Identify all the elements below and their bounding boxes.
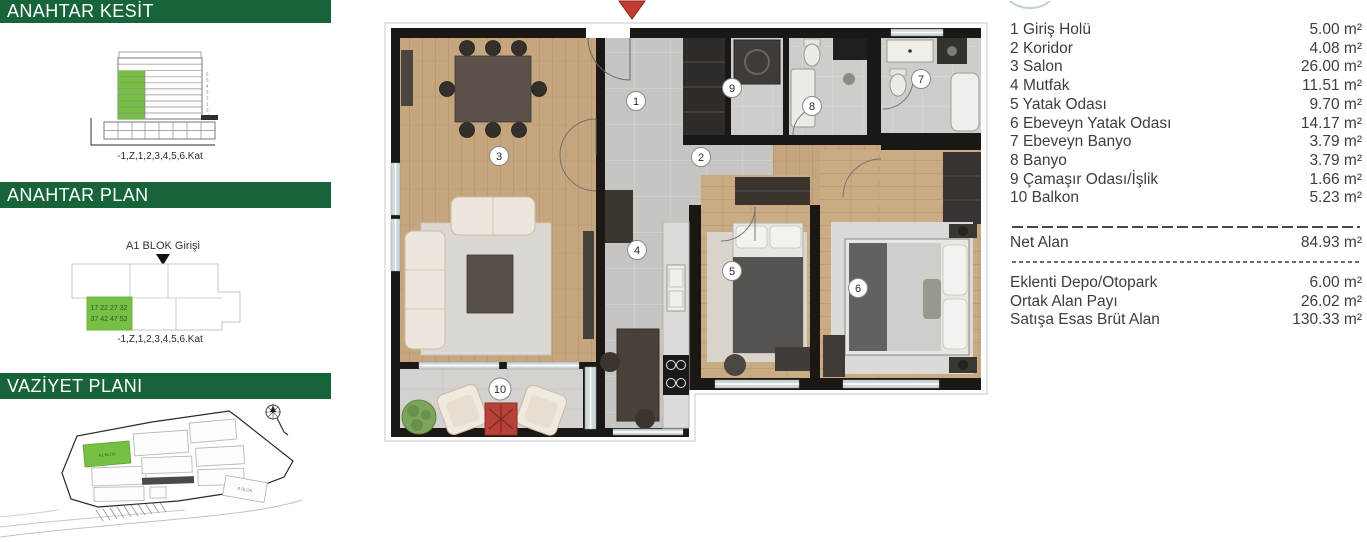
room-name: Koridor xyxy=(1023,40,1073,57)
pillow xyxy=(770,226,801,248)
site-plan-diagram: B BLOK A1 BLOK xyxy=(0,399,331,542)
room-area: 4.08 m² xyxy=(1309,40,1362,59)
room-label: 3 Salon xyxy=(1010,58,1063,77)
kitchen-chair xyxy=(635,409,655,429)
room-list-row: 1 Giriş Holü5.00 m² xyxy=(1010,21,1362,40)
washing-machine xyxy=(734,40,780,84)
building-outline xyxy=(94,487,144,502)
section-header-vaziyet-plani: VAZİYET PLANI xyxy=(0,373,331,399)
floor-labels: 6 5 4 3 2 1 Z -1 xyxy=(206,71,210,118)
sofa xyxy=(405,231,445,349)
highlighted-unit xyxy=(87,297,132,330)
room-name: Ebeveyn Yatak Odası xyxy=(1023,115,1172,132)
unit-numbers-row2: 37 42 47 52 xyxy=(91,316,128,323)
kitchen-counter xyxy=(663,222,689,428)
svg-text:2: 2 xyxy=(698,152,704,164)
room-list: 1 Giriş Holü5.00 m² 2 Koridor4.08 m² 3 S… xyxy=(1010,0,1362,542)
extra-value: 26.02 m² xyxy=(1301,293,1362,312)
section-title-plan: ANAHTAR PLAN xyxy=(7,185,149,206)
room-name: Banyo xyxy=(1023,152,1067,169)
shower-head-icon xyxy=(947,46,957,56)
building-outline xyxy=(142,456,193,474)
svg-text:3: 3 xyxy=(496,151,502,163)
section-title-vaziyet: VAZİYET PLANI xyxy=(7,376,143,397)
floor-plan: 1 2 3 4 5 6 7 8 9 10 xyxy=(383,17,993,447)
room-area: 3.79 m² xyxy=(1309,152,1362,171)
room-name: Ebeveyn Banyo xyxy=(1023,133,1132,150)
net-area-label: Net Alan xyxy=(1010,234,1069,253)
dresser xyxy=(775,347,810,371)
room-badge-2: 2 xyxy=(692,148,711,167)
room-label: 8 Banyo xyxy=(1010,152,1067,171)
room-list-row: 9 Çamaşır Odası/İşlik1.66 m² xyxy=(1010,171,1362,190)
room-list-items: 1 Giriş Holü5.00 m² 2 Koridor4.08 m² 3 S… xyxy=(1010,21,1362,208)
red-side-table xyxy=(485,403,517,435)
floor-label: Z xyxy=(206,108,209,113)
floor-label: 4 xyxy=(206,83,209,88)
floor-label: 2 xyxy=(206,96,209,101)
room-label: 6 Ebeveyn Yatak Odası xyxy=(1010,115,1171,134)
room-label: 2 Koridor xyxy=(1010,40,1073,59)
kitchen-sink xyxy=(667,265,685,311)
building-outline xyxy=(92,466,147,486)
svg-text:4: 4 xyxy=(634,245,640,257)
room-badge-1: 1 xyxy=(627,92,646,111)
room-label: 7 Ebeveyn Banyo xyxy=(1010,133,1132,152)
coffee-table xyxy=(467,255,513,313)
duvet xyxy=(733,257,803,353)
room-badge-5: 5 xyxy=(723,262,742,281)
room-no: 4 xyxy=(1010,77,1019,94)
room-no: 2 xyxy=(1010,40,1019,57)
extra-label: Eklenti Depo/Otopark xyxy=(1010,274,1157,293)
room-no: 7 xyxy=(1010,133,1019,150)
room-name: Yatak Odası xyxy=(1023,96,1107,113)
extra-row: Satışa Esas Brüt Alan 130.33 m² xyxy=(1010,311,1362,330)
shower-head-icon xyxy=(843,73,855,85)
room-list-row: 3 Salon26.00 m² xyxy=(1010,58,1362,77)
room-no: 9 xyxy=(1010,171,1019,188)
media-console xyxy=(583,231,594,339)
room-name: Balkon xyxy=(1032,189,1079,206)
room-badge-4: 4 xyxy=(628,241,647,260)
room-badge-7: 7 xyxy=(912,70,931,89)
room-badge-6: 6 xyxy=(849,279,868,298)
room-area: 9.70 m² xyxy=(1309,96,1362,115)
room-list-row: 4 Mutfak11.51 m² xyxy=(1010,77,1362,96)
section-roof xyxy=(119,52,201,58)
separator-line-dashed xyxy=(1012,261,1360,263)
entrance-gap xyxy=(586,28,630,38)
room-name: Salon xyxy=(1023,58,1063,75)
kitchen-chair xyxy=(600,352,620,372)
sidebar: ANAHTAR KESİT 6 5 4 3 2 1 Z -1 xyxy=(0,0,331,542)
section-header-anahtar-plan: ANAHTAR PLAN xyxy=(0,182,331,208)
wardrobe xyxy=(943,152,981,224)
bedroom-chair xyxy=(724,354,746,376)
room-list-row: 8 Banyo3.79 m² xyxy=(1010,152,1362,171)
page: ANAHTAR KESİT 6 5 4 3 2 1 Z -1 xyxy=(0,0,1367,542)
hall-closet xyxy=(683,38,725,135)
toilet xyxy=(890,74,906,96)
svg-text:9: 9 xyxy=(729,83,735,95)
room-label: 9 Çamaşır Odası/İşlik xyxy=(1010,171,1158,190)
room-badge-10: 10 xyxy=(489,378,511,400)
building-outline xyxy=(189,419,237,443)
room-list-row: 6 Ebeveyn Yatak Odası14.17 m² xyxy=(1010,115,1362,134)
room-no: 6 xyxy=(1010,115,1019,132)
room-label: 10 Balkon xyxy=(1010,189,1079,208)
building-outline xyxy=(150,487,166,498)
pillow xyxy=(943,299,967,349)
toilet xyxy=(804,44,820,66)
svg-text:6: 6 xyxy=(855,283,861,295)
extra-label: Ortak Alan Payı xyxy=(1010,293,1118,312)
svg-text:10: 10 xyxy=(494,384,506,396)
room-area: 5.23 m² xyxy=(1309,189,1362,208)
bathtub xyxy=(951,73,979,131)
pillow xyxy=(943,245,967,295)
floor-label: 1 xyxy=(206,102,209,107)
anahtar-kesit-panel: 6 5 4 3 2 1 Z -1 -1,Z,1,2,3,4,5,6.Kat xyxy=(0,23,331,182)
room-list-row: 5 Yatak Odası9.70 m² xyxy=(1010,96,1362,115)
building-outline xyxy=(133,430,188,456)
accent-pillow xyxy=(923,279,941,319)
room-list-row: 10 Balkon5.23 m² xyxy=(1010,189,1362,208)
road-line xyxy=(0,510,185,527)
extra-label: Satışa Esas Brüt Alan xyxy=(1010,311,1160,330)
room-list-row: 2 Koridor4.08 m² xyxy=(1010,40,1362,59)
net-area-value: 84.93 m² xyxy=(1301,234,1362,253)
section-caption: -1,Z,1,2,3,4,5,6.Kat xyxy=(117,151,203,162)
stove xyxy=(663,355,689,395)
road-line xyxy=(0,510,58,517)
svg-text:7: 7 xyxy=(918,74,924,86)
room-badge-8: 8 xyxy=(803,97,822,116)
faucet-dot xyxy=(908,49,912,53)
room-label: 4 Mutfak xyxy=(1010,77,1069,96)
room-no: 10 xyxy=(1010,189,1027,206)
extra-row: Eklenti Depo/Otopark 6.00 m² xyxy=(1010,274,1362,293)
room-label: 1 Giriş Holü xyxy=(1010,21,1091,40)
lamp-icon xyxy=(958,226,968,236)
room-name: Giriş Holü xyxy=(1023,21,1091,38)
extra-value: 6.00 m² xyxy=(1309,274,1362,293)
floor-label: 6 xyxy=(206,71,209,76)
lamp-icon xyxy=(958,360,968,370)
svg-text:1: 1 xyxy=(633,96,639,108)
road-line xyxy=(0,500,302,537)
room-area: 5.00 m² xyxy=(1309,21,1362,40)
room-no: 8 xyxy=(1010,152,1019,169)
room-no: 3 xyxy=(1010,58,1019,75)
unit-numbers-row1: 17 22 27 32 xyxy=(91,305,128,312)
building-section-diagram: 6 5 4 3 2 1 Z -1 -1,Z,1,2,3,4,5,6.Kat xyxy=(0,23,331,182)
vaziyet-plani-panel: B BLOK A1 BLOK xyxy=(0,399,331,542)
section-header-anahtar-kesit: ANAHTAR KESİT xyxy=(0,0,331,23)
net-area-row: Net Alan 84.93 m² xyxy=(1010,234,1362,253)
extra-value: 130.33 m² xyxy=(1292,311,1362,330)
key-plan-caption: -1,Z,1,2,3,4,5,6.Kat xyxy=(117,334,203,345)
room-area: 1.66 m² xyxy=(1309,171,1362,190)
floor-label: 3 xyxy=(206,90,209,95)
room-label: 5 Yatak Odası xyxy=(1010,96,1107,115)
room-giris-holu xyxy=(605,38,683,145)
separator-line-solid xyxy=(1012,226,1360,228)
room-area: 11.51 m² xyxy=(1302,77,1362,96)
anahtar-plan-panel: A1 BLOK Girişi 17 22 27 32 37 42 47 52 -… xyxy=(0,208,331,373)
svg-text:5: 5 xyxy=(729,266,735,278)
kitchen-cabinet xyxy=(605,190,633,243)
pillow xyxy=(736,226,767,248)
room-no: 5 xyxy=(1010,96,1019,113)
building-outline xyxy=(196,446,245,466)
room-list-row: 7 Ebeveyn Banyo3.79 m² xyxy=(1010,133,1362,152)
room-area: 26.00 m² xyxy=(1301,58,1362,77)
svg-text:8: 8 xyxy=(809,101,815,113)
kitchen-table xyxy=(617,329,659,421)
key-plan-diagram: A1 BLOK Girişi 17 22 27 32 37 42 47 52 -… xyxy=(0,208,331,373)
room-name: Mutfak xyxy=(1023,77,1070,94)
gross-area-rows: Eklenti Depo/Otopark 6.00 m² Ortak Alan … xyxy=(1010,274,1362,330)
section-title-kesit: ANAHTAR KESİT xyxy=(7,1,154,22)
room-badge-9: 9 xyxy=(723,79,742,98)
section-dark-block xyxy=(201,115,218,120)
room-no: 1 xyxy=(1010,21,1019,38)
tv-cabinet xyxy=(401,50,413,106)
plant-icon xyxy=(402,400,436,434)
extra-row: Ortak Alan Payı 26.02 m² xyxy=(1010,293,1362,312)
shaft xyxy=(833,38,867,60)
room-area: 3.79 m² xyxy=(1309,133,1362,152)
floor-label: 5 xyxy=(206,77,209,82)
room-area: 14.17 m² xyxy=(1301,115,1362,134)
room-badge-3: 3 xyxy=(490,147,509,166)
desk xyxy=(823,335,845,377)
block-entrance-label: A1 BLOK Girişi xyxy=(126,240,200,252)
a1-blok-highlight: A1 BLOK xyxy=(83,441,131,467)
dining-table xyxy=(455,56,531,122)
room-name: Çamaşır Odası/İşlik xyxy=(1023,171,1158,188)
entrance-pointer-icon xyxy=(156,254,170,265)
compass-icon xyxy=(265,404,288,435)
